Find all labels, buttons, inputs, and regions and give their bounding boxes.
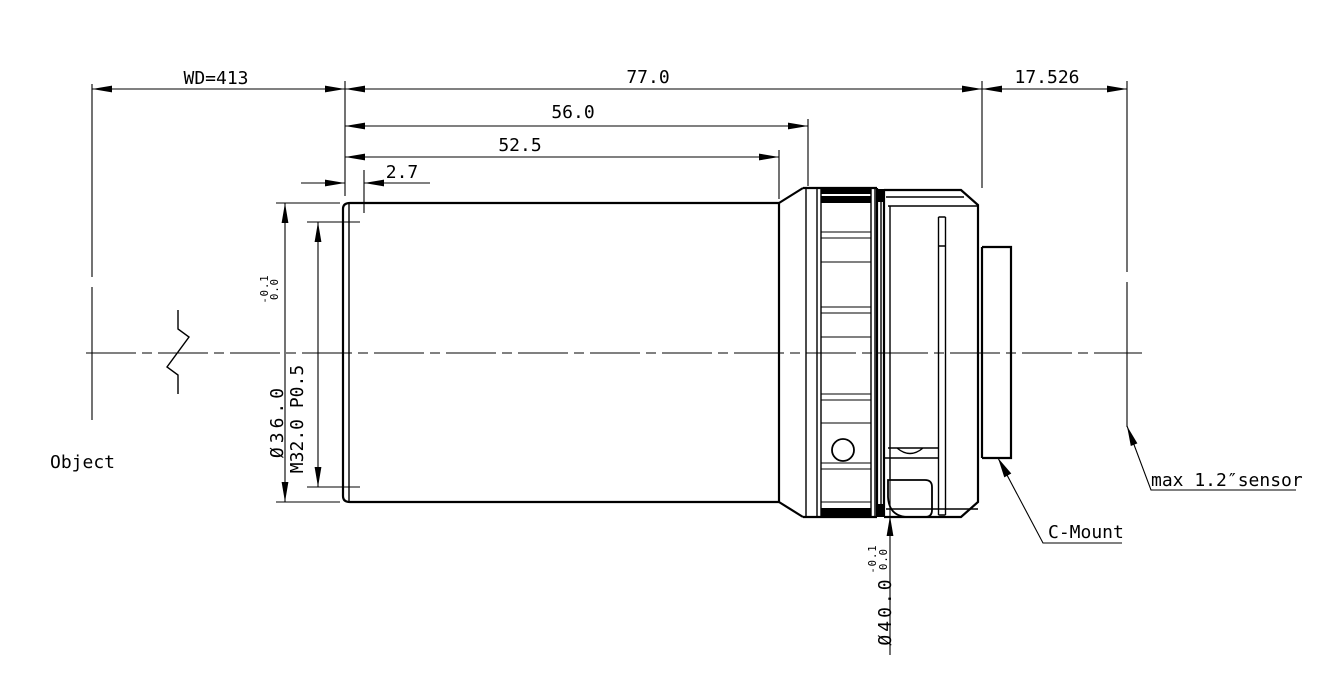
- knurl-dark-band-bottom: [821, 508, 871, 516]
- arrowhead: [982, 86, 1002, 93]
- dim-dia40-tol-upper: 0.0: [878, 548, 890, 570]
- dim-2-7-text: 2.7: [386, 162, 419, 183]
- arrowhead: [282, 482, 289, 502]
- sensor-label: max 1.2″sensor: [1151, 470, 1303, 491]
- break-symbol: [167, 310, 189, 394]
- knurl-dark-band-top2: [821, 196, 871, 203]
- arrowhead: [92, 86, 112, 93]
- object-plane: Object: [50, 84, 189, 473]
- arrowhead: [315, 222, 322, 242]
- leader-arrowhead: [998, 458, 1011, 477]
- lens-technical-drawing: Object: [0, 0, 1318, 675]
- dim-17-526-text: 17.526: [1014, 67, 1079, 88]
- arrowhead: [345, 86, 365, 93]
- object-label: Object: [50, 452, 115, 473]
- arrowhead: [325, 180, 345, 187]
- dim-wd-text: WD=413: [183, 68, 248, 89]
- knurl-dark-band-top1: [821, 189, 871, 194]
- top-dimension-row: [92, 81, 1127, 427]
- dim-56-text: 56.0: [551, 102, 594, 123]
- arrowhead: [759, 154, 779, 161]
- arrowhead: [788, 123, 808, 130]
- arrowhead: [345, 123, 365, 130]
- dim-dia40-tol-lower: -0.1: [867, 544, 879, 573]
- rear-cap-section: [888, 480, 932, 517]
- dim-thread-text: M32.0 P0.5: [287, 365, 308, 473]
- arrowhead: [364, 180, 384, 187]
- c-mount-label: C-Mount: [1048, 522, 1124, 543]
- dim-77-text: 77.0: [626, 67, 669, 88]
- leader-arrowhead: [1127, 426, 1137, 446]
- arrowhead: [282, 203, 289, 223]
- lens-technical-drawing-page: Object: [0, 0, 1318, 675]
- arrowhead: [315, 467, 322, 487]
- arrowhead: [962, 86, 982, 93]
- arrowhead: [345, 154, 365, 161]
- rear-slot: [939, 217, 946, 515]
- sensor-callout: max 1.2″sensor: [1127, 426, 1303, 491]
- dim-52-5-text: 52.5: [498, 135, 541, 156]
- dim-dia40-text: Ø40.0: [875, 576, 896, 645]
- dim-dia36-text: Ø36.0: [267, 384, 288, 458]
- dim-front-step-length: 2.7: [301, 162, 430, 213]
- set-screw: [832, 439, 854, 461]
- extension-lines: [307, 222, 360, 487]
- arrowhead: [325, 86, 345, 93]
- c-mount-callout: C-Mount: [998, 458, 1124, 543]
- block-detail-lines: [884, 448, 938, 458]
- dim-dia36-tol-lower: -0.1: [259, 274, 271, 303]
- arrowhead: [1107, 86, 1127, 93]
- arrowhead: [887, 516, 894, 536]
